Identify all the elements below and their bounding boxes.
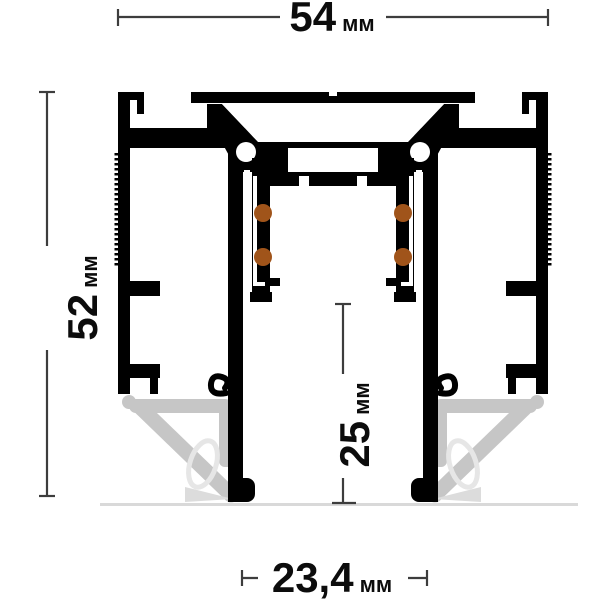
dimension-overall-height: 52мм — [39, 92, 106, 496]
label-backplate — [39, 246, 55, 350]
contact-wall-foot — [248, 292, 272, 302]
channel-wall-foot — [229, 478, 255, 502]
wing-step — [118, 281, 160, 296]
contact-wall-stub — [270, 278, 280, 286]
profile-drawing-canvas: 54мм 52мм 25мм 23,4мм — [0, 0, 600, 600]
wing-hook-curl — [211, 376, 227, 393]
dimension-overall-width: 54мм — [118, 0, 548, 40]
profile-cross-section-svg: 54мм 52мм 25мм 23,4мм — [0, 0, 600, 600]
dimension-label: 52мм — [59, 255, 106, 340]
top-plate-notch — [329, 91, 337, 96]
insulator-line — [253, 176, 257, 284]
dimension-channel-width: 23,4мм — [242, 554, 427, 600]
wing-foot-lip — [150, 364, 158, 394]
bridge-notch — [299, 176, 309, 186]
bridge-inner-cavity — [288, 148, 378, 172]
channel-outer-wall — [228, 148, 243, 502]
copper-contact-dot — [254, 204, 272, 222]
mounting-clip — [122, 395, 233, 502]
outer-wall-top-lip — [137, 92, 144, 114]
insulator-line-foot — [253, 282, 265, 286]
bridge-notch — [357, 176, 367, 186]
insulator-slot — [244, 170, 250, 302]
copper-contact-dot — [254, 248, 272, 266]
